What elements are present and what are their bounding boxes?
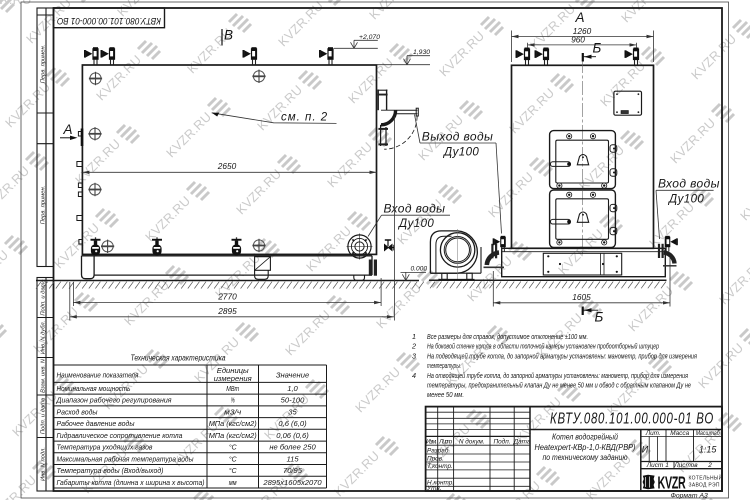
svg-text:И: И [642,445,649,455]
svg-text:2895х1605х2070: 2895х1605х2070 [262,478,322,487]
svg-text:МПа (кгс/см2): МПа (кгс/см2) [209,419,257,428]
svg-text:Листов: Листов [673,462,698,469]
svg-text:0,6 (6,0): 0,6 (6,0) [278,419,307,428]
svg-text:70/95: 70/95 [283,466,303,475]
svg-text:Пров.: Пров. [427,455,444,462]
svg-text:Значение: Значение [276,371,309,380]
svg-text:2: 2 [411,342,416,351]
svg-text:Б: Б [593,41,602,56]
svg-text:Расход воды: Расход воды [57,407,98,416]
svg-text:960: 960 [571,35,585,45]
svg-text:35: 35 [288,407,297,416]
svg-text:Heatexpert-КВр-1,0-КВД(РВР): Heatexpert-КВр-1,0-КВД(РВР) [535,443,636,452]
svg-text:Инв. N подл.: Инв. N подл. [40,447,46,481]
svg-text:KVZR: KVZR [658,473,687,493]
svg-text:А3: А3 [699,493,709,500]
svg-text:1:15: 1:15 [699,445,718,455]
svg-text:Температура уходящих газов: Температура уходящих газов [57,443,153,452]
svg-text:На боковой стенке котла в обла: На боковой стенке котла в области топочн… [427,342,659,351]
svg-text:ЗАВОД РЭП: ЗАВОД РЭП [689,483,720,489]
svg-text:Взам. инв. N: Взам. инв. N [40,358,46,393]
svg-text:0.000: 0.000 [411,265,428,272]
svg-text:Утв.: Утв. [426,485,442,492]
svg-text:Габариты котла (длинна х ширин: Габариты котла (длинна х ширина х высота… [57,478,205,487]
svg-text:Вход воды: Вход воды [384,202,446,216]
svg-text:не более 250: не более 250 [269,443,316,452]
svg-text:50-100: 50-100 [281,396,305,405]
svg-text:мм: мм [229,478,238,487]
svg-text:1,930: 1,930 [413,49,430,56]
svg-text:м3/ч: м3/ч [224,407,241,416]
svg-text:Дата: Дата [513,439,531,446]
svg-text:3: 3 [412,351,416,360]
svg-text:Лит.: Лит. [645,430,661,437]
svg-text:Рабочее давление воды: Рабочее давление воды [57,419,135,428]
svg-text:см. п. 2: см. п. 2 [281,112,328,124]
svg-text:2770: 2770 [217,292,237,302]
svg-text:°С: °С [229,466,237,475]
svg-text:Лист: Лист [438,439,453,446]
svg-text:0,06 (0,6): 0,06 (0,6) [276,431,309,440]
svg-text:2: 2 [707,462,712,469]
svg-text:Котел водогрейный: Котел водогрейный [552,433,618,442]
svg-text:Подп.: Подп. [493,438,510,446]
svg-text:На подводящей трубе котла, д: На подводящей трубе котла, до запорной а… [427,351,697,360]
svg-text:°С: °С [229,443,237,452]
svg-text:Лист: Лист [646,462,664,469]
svg-text:измерения: измерения [214,374,252,383]
svg-text:Б: Б [595,310,604,325]
svg-text:А: А [575,10,585,25]
svg-text:температуры, предохранительный: температуры, предохранительный клапан Ду… [427,381,691,390]
svg-text:Формат: Формат [671,493,698,500]
svg-text:1: 1 [665,462,669,469]
svg-text:Изм.: Изм. [426,439,437,446]
svg-text:+2,070: +2,070 [359,34,380,41]
svg-text:2895: 2895 [217,306,237,316]
svg-text:°С: °С [229,454,237,463]
svg-text:%: % [231,396,235,405]
svg-text:1605: 1605 [572,292,591,302]
svg-text:Ду100: Ду100 [397,218,434,230]
svg-text:1: 1 [412,332,416,341]
svg-text:Ду100: Ду100 [442,146,479,158]
svg-text:Масштаб: Масштаб [696,429,720,437]
svg-text:На отводящей трубе котла, до з: На отводящей трубе котла, до запорной ар… [427,371,688,380]
svg-text:Диапазон рабочего регулировани: Диапазон рабочего регулирования [56,396,172,405]
svg-text:4: 4 [412,371,416,380]
svg-text:2650: 2650 [217,161,237,171]
svg-text:1,0: 1,0 [287,384,298,393]
svg-text:N докум.: N докум. [459,438,485,446]
svg-text:Подп. и дата: Подп. и дата [40,397,46,434]
svg-text:Ду100: Ду100 [667,194,704,206]
svg-text:МВт: МВт [226,384,239,393]
svg-text:В: В [224,28,233,43]
svg-text:Масса: Масса [670,430,689,437]
svg-text:Наименование показателя: Наименование показателя [57,371,139,380]
svg-text:МПа (кгс/см2): МПа (кгс/см2) [209,431,257,440]
svg-text:КВТУ.080.101.00.000-01 ВО: КВТУ.080.101.00.000-01 ВО [57,16,161,26]
svg-text:Выход воды: Выход воды [422,129,493,143]
svg-text:Все размеры для справок, допус: Все размеры для справок, допустимое откл… [427,332,588,341]
svg-text:температуры.: температуры. [427,361,461,370]
svg-text:Максимальная рабочая температу: Максимальная рабочая температура воды [57,454,194,463]
svg-text:Техническая характеристика: Техническая характеристика [131,354,226,363]
svg-text:КВТУ.080.101.00.000-01 ВО: КВТУ.080.101.00.000-01 ВО [550,411,714,428]
svg-text:Перв. примен.: Перв. примен. [40,186,46,225]
svg-text:А: А [63,122,73,137]
svg-text:Вход воды: Вход воды [658,177,720,191]
svg-text:менее 50 мм.: менее 50 мм. [427,390,464,399]
svg-text:Гидравлическое сопротивление к: Гидравлическое сопротивление котла [57,431,183,440]
svg-text:Инв. N дубл.: Инв. N дубл. [40,321,46,355]
svg-text:Перв. примен.: Перв. примен. [40,45,46,84]
svg-text:Температура воды (Вход/выход): Температура воды (Вход/выход) [57,466,164,475]
svg-text:115: 115 [286,454,299,463]
svg-text:КОТЕЛЬНЫЙ: КОТЕЛЬНЫЙ [689,474,723,482]
svg-text:Разраб.: Разраб. [427,446,450,454]
svg-text:Номинальная мощность: Номинальная мощность [57,384,131,393]
svg-text:Т.контр.: Т.контр. [427,463,453,470]
svg-text:по техническому заданию: по техническому заданию [543,453,628,462]
